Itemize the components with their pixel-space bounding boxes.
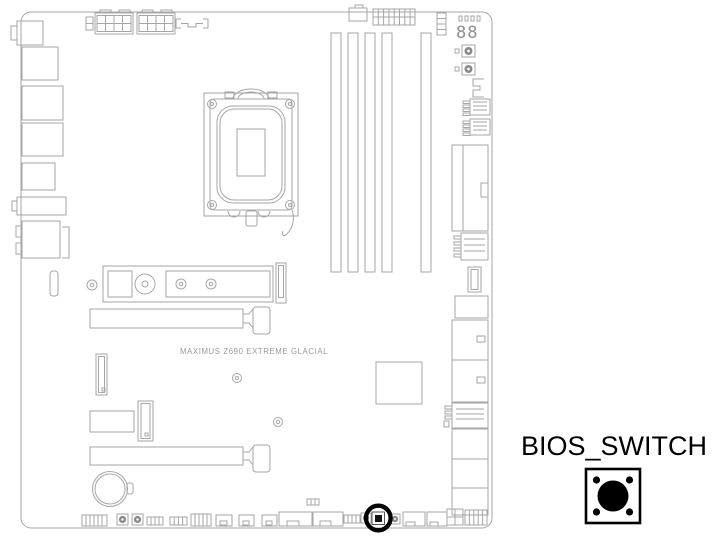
bottom-edge-headers [82,499,487,526]
standoff-holes [233,374,283,427]
pcie-slot-1 [90,307,270,334]
bios-switch-label: BIOS_SWITCH [521,431,707,461]
safe-boot-button [132,514,143,525]
dimm2-slot [421,33,431,272]
right-edge-connectors [444,145,488,515]
chipset [376,362,422,404]
m2-sockets-mid [90,354,153,441]
push-button-switch-icon [586,469,640,523]
q-code-value: 88 [456,23,478,43]
flexkey-button [455,63,475,75]
power-button [455,45,475,57]
q-code-debug-display: 88 [456,16,480,43]
rear-io-ports [11,21,69,296]
retention-clip [176,19,208,28]
cmos-battery [93,472,134,507]
eps-power-connectors [86,10,175,34]
m2-heatsink [87,263,286,303]
cpu-socket [204,89,298,235]
fan-headers-top-right [463,99,490,136]
bios-switch-component [372,512,385,525]
dimm-slots [331,33,431,272]
legend: BIOS_SWITCH [521,431,707,523]
retry-button [117,514,128,525]
motherboard-diagram: 88 [0,0,718,559]
retention-clip-right [473,79,484,97]
motherboard-diagram-page: 88 [0,0,718,559]
pcie-slot-2 [90,445,270,472]
board-name-label: MAXIMUS Z690 EXTREME GLACIAL [180,347,328,356]
top-right-headers [349,5,446,35]
socket-lever [282,210,293,235]
motherboard-outline-group: 88 [11,5,492,528]
